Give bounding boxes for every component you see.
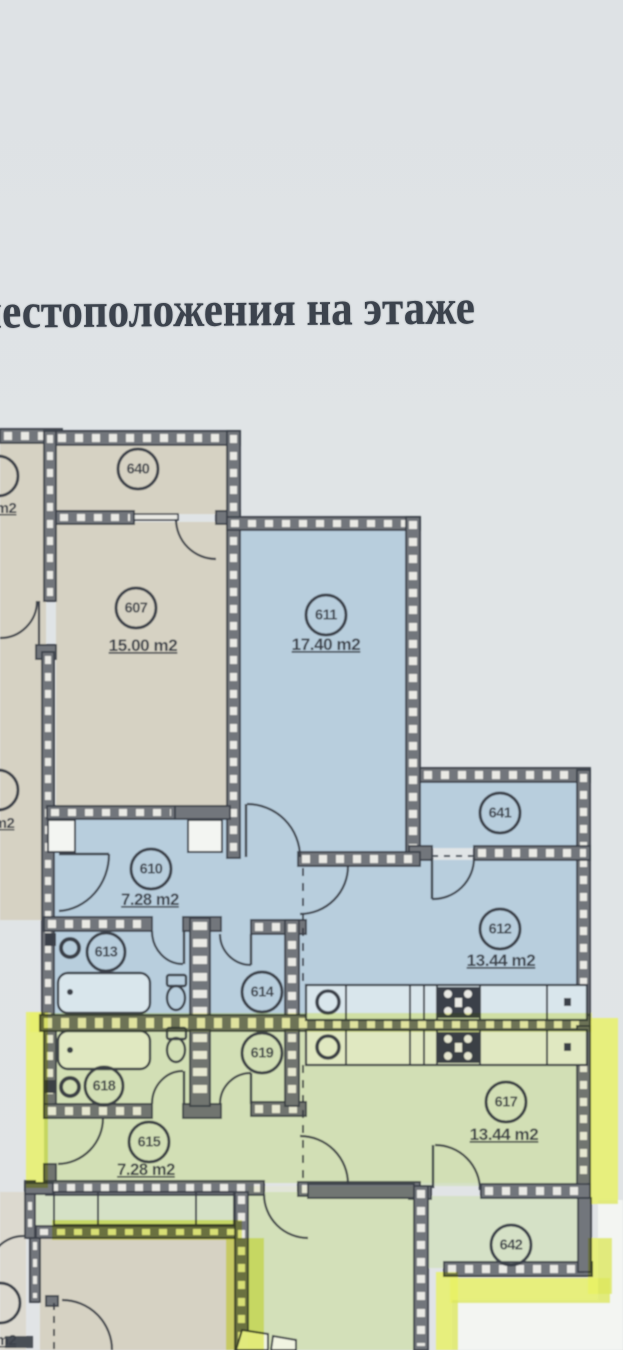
svg-text:614: 614 [251,985,274,1001]
svg-text:641: 641 [489,806,512,822]
svg-text:m2: m2 [0,500,16,517]
svg-text:642: 642 [500,1238,523,1254]
svg-text:m2: m2 [0,815,14,832]
svg-text:640: 640 [127,462,150,478]
svg-text:612: 612 [489,922,512,938]
svg-text:17.40 m2: 17.40 m2 [292,635,361,654]
svg-text:607: 607 [125,601,148,617]
svg-text:13.44 m2: 13.44 m2 [467,951,536,970]
svg-text:15.00 m2: 15.00 m2 [109,636,178,655]
svg-text:613: 613 [95,945,118,961]
svg-text:611: 611 [315,608,337,624]
svg-text:610: 610 [140,862,163,878]
svg-text:m2: m2 [0,1332,16,1349]
svg-text:7.28 m2: 7.28 m2 [121,891,179,909]
